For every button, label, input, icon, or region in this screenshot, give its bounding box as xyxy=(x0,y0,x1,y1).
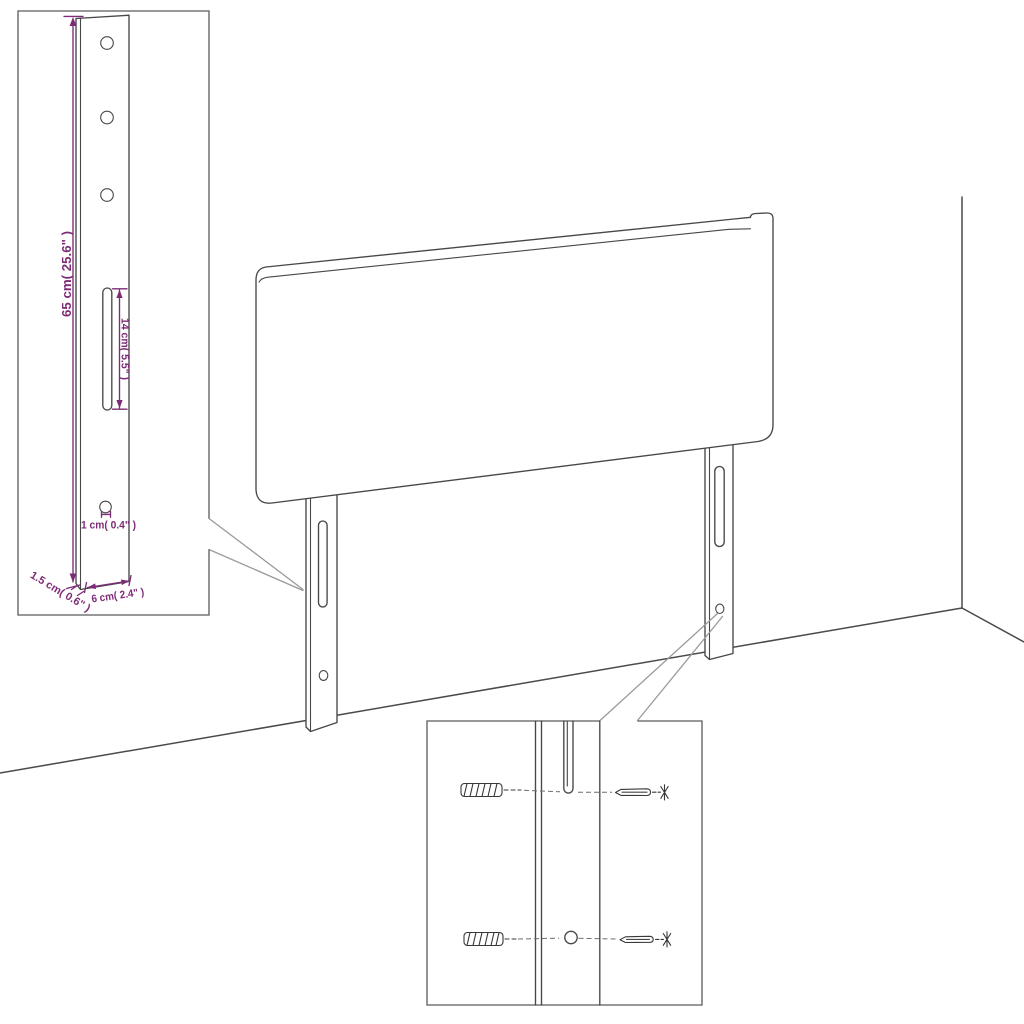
wall-fixing-hardware-detail xyxy=(427,614,723,1006)
headboard-right-leg xyxy=(705,444,733,660)
slot-length-label: 14 cm( 5.5" ) xyxy=(119,318,131,380)
detail-callout-lines xyxy=(209,519,303,591)
diagram-canvas: 65 cm( 25.6" ) 14 cm( 5.5" ) 1 cm( 0.4" … xyxy=(0,0,1024,1024)
assembly-diagram: 65 cm( 25.6" ) 14 cm( 5.5" ) 1 cm( 0.4" … xyxy=(0,0,1024,1024)
panel-outline xyxy=(256,213,773,503)
leg-width-label: 6 cm( 2.4" ) xyxy=(91,586,146,605)
leg-slot xyxy=(103,288,112,410)
headboard-panel xyxy=(256,213,773,503)
left-leg-slot xyxy=(319,521,328,607)
leg-height-label: 65 cm( 25.6" ) xyxy=(59,231,74,317)
hardware-frame xyxy=(427,721,702,1005)
right-leg-slot xyxy=(715,467,724,547)
headboard-left-leg xyxy=(306,494,337,732)
detail-leg xyxy=(76,15,129,589)
floor-line-right xyxy=(962,608,1024,642)
hole-size-label: 1 cm( 0.4" ) xyxy=(81,520,136,532)
